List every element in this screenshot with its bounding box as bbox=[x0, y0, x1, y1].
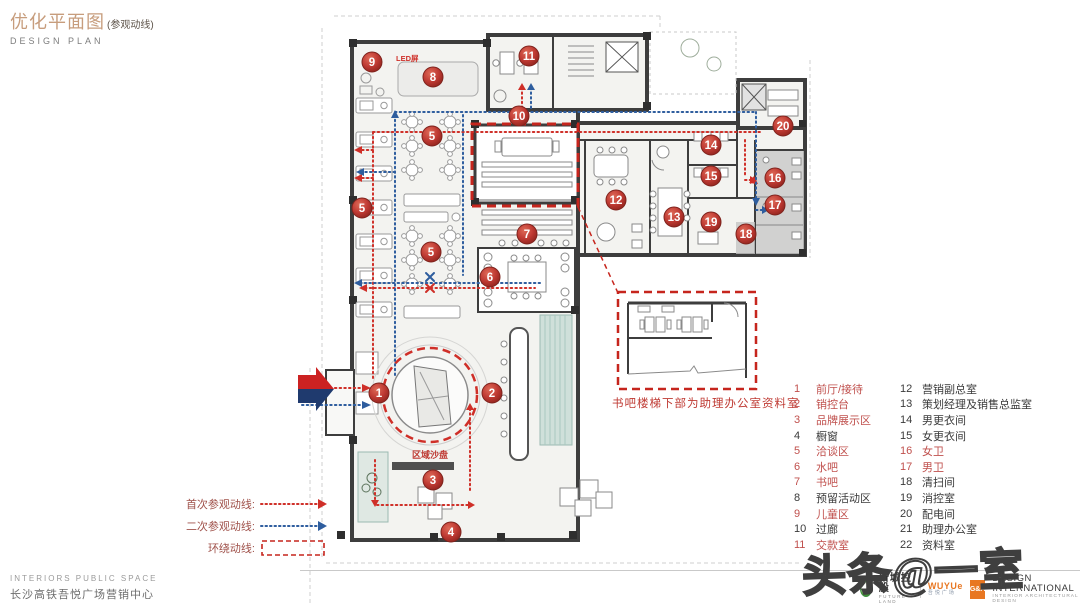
legend-item-number: 19 bbox=[900, 492, 922, 504]
plan-marker-4: 4 bbox=[441, 522, 461, 542]
svg-text:13: 13 bbox=[668, 212, 681, 224]
legend-item-label: 橱窗 bbox=[816, 428, 838, 444]
inset-caption: 书吧楼梯下部为助理办公室资料室 bbox=[612, 396, 800, 410]
legend-item-20: 20配电间 bbox=[900, 506, 1050, 522]
legend-item-2: 2销控台 bbox=[794, 397, 900, 413]
footer-project-cn: 长沙高铁吾悦广场营销中心 bbox=[10, 586, 157, 602]
svg-text:16: 16 bbox=[769, 173, 782, 185]
legend-item-label: 策划经理及销售总监室 bbox=[922, 396, 1032, 412]
route-legend: 首次参观动线: 二次参观动线: 环绕动线: bbox=[140, 493, 330, 559]
legend-item-label: 书吧 bbox=[816, 474, 838, 490]
svg-text:20: 20 bbox=[777, 121, 790, 133]
room-legend: 1前厅/接待2销控台3品牌展示区4橱窗5洽谈区6水吧7书吧8预留活动区9儿童区1… bbox=[794, 381, 1050, 553]
svg-text:9: 9 bbox=[369, 57, 375, 69]
route-second-label: 二次参观动线: bbox=[186, 518, 255, 534]
legend-item-number: 5 bbox=[794, 445, 816, 457]
legend-item-label: 销控台 bbox=[816, 396, 849, 412]
legend-item-number: 2 bbox=[794, 398, 816, 410]
svg-text:19: 19 bbox=[705, 217, 718, 229]
legend-item-number: 16 bbox=[900, 445, 922, 457]
plan-marker-20: 20 bbox=[773, 116, 793, 136]
plan-marker-19: 19 bbox=[701, 212, 721, 232]
plan-marker-7: 7 bbox=[517, 224, 537, 244]
legend-item-number: 18 bbox=[900, 476, 922, 488]
footer-project: INTERIORS PUBLIC SPACE 长沙高铁吾悦广场营销中心 bbox=[10, 574, 157, 602]
legend-item-number: 10 bbox=[794, 523, 816, 535]
legend-item-number: 20 bbox=[900, 508, 922, 520]
legend-item-number: 15 bbox=[900, 430, 922, 442]
plan-marker-3: 3 bbox=[423, 470, 443, 490]
design-plan-slide: 优化平面图 (参观动线) DESIGN PLAN bbox=[0, 0, 1080, 605]
svg-text:8: 8 bbox=[430, 72, 437, 84]
plan-marker-17: 17 bbox=[765, 195, 785, 215]
legend-item-9: 9儿童区 bbox=[794, 506, 900, 522]
legend-item-label: 过廊 bbox=[816, 521, 838, 537]
legend-item-15: 15女更衣间 bbox=[900, 428, 1050, 444]
svg-text:5: 5 bbox=[359, 203, 366, 215]
plan-marker-5: 5 bbox=[421, 242, 441, 262]
plan-marker-2: 2 bbox=[482, 383, 502, 403]
plan-marker-9: 9 bbox=[362, 52, 382, 72]
legend-item-number: 13 bbox=[900, 398, 922, 410]
legend-item-19: 19消控室 bbox=[900, 490, 1050, 506]
svg-text:17: 17 bbox=[769, 200, 782, 212]
legend-item-label: 女卫 bbox=[922, 443, 944, 459]
footer-project-en: INTERIORS PUBLIC SPACE bbox=[10, 574, 157, 583]
legend-item-label: 男更衣间 bbox=[922, 412, 966, 428]
legend-item-3: 3品牌展示区 bbox=[794, 412, 900, 428]
legend-item-10: 10过廊 bbox=[794, 521, 900, 537]
watermark: 头条@一室 bbox=[801, 531, 1080, 605]
legend-item-17: 17男卫 bbox=[900, 459, 1050, 475]
led-label: LED屏 bbox=[396, 54, 419, 63]
inset-detail: 书吧楼梯下部为助理办公室资料室 bbox=[612, 292, 800, 410]
legend-item-number: 9 bbox=[794, 508, 816, 520]
terrace bbox=[650, 32, 736, 94]
plan-marker-14: 14 bbox=[701, 135, 721, 155]
blue-dotted-arrow-swatch bbox=[258, 517, 330, 535]
sand-table-label: 区域沙盘 bbox=[412, 449, 448, 460]
route-first-label: 首次参观动线: bbox=[186, 496, 255, 512]
legend-item-number: 12 bbox=[900, 383, 922, 395]
legend-item-4: 4橱窗 bbox=[794, 428, 900, 444]
legend-item-number: 3 bbox=[794, 414, 816, 426]
legend-item-label: 配电间 bbox=[922, 506, 955, 522]
legend-item-13: 13策划经理及销售总监室 bbox=[900, 397, 1050, 413]
svg-text:1: 1 bbox=[376, 388, 383, 400]
legend-item-number: 1 bbox=[794, 383, 816, 395]
legend-item-14: 14男更衣间 bbox=[900, 412, 1050, 428]
svg-text:11: 11 bbox=[523, 51, 536, 63]
plan-marker-10: 10 bbox=[509, 106, 529, 126]
svg-text:3: 3 bbox=[430, 475, 436, 487]
svg-text:12: 12 bbox=[610, 195, 623, 207]
svg-text:18: 18 bbox=[740, 229, 753, 241]
legend-item-6: 6水吧 bbox=[794, 459, 900, 475]
room-legend-column-2: 12营销副总室13策划经理及销售总监室14男更衣间15女更衣间16女卫17男卫1… bbox=[900, 381, 1050, 553]
svg-text:15: 15 bbox=[705, 171, 718, 183]
legend-item-number: 17 bbox=[900, 461, 922, 473]
legend-item-label: 前厅/接待 bbox=[816, 381, 863, 397]
legend-item-label: 儿童区 bbox=[816, 506, 849, 522]
legend-item-number: 8 bbox=[794, 492, 816, 504]
legend-item-8: 8预留活动区 bbox=[794, 490, 900, 506]
plan-marker-13: 13 bbox=[664, 207, 684, 227]
legend-item-label: 女更衣间 bbox=[922, 428, 966, 444]
legend-item-label: 营销副总室 bbox=[922, 381, 977, 397]
legend-item-number: 6 bbox=[794, 461, 816, 473]
legend-item-number: 21 bbox=[900, 523, 922, 535]
plan-marker-12: 12 bbox=[606, 190, 626, 210]
legend-item-label: 预留活动区 bbox=[816, 490, 871, 506]
plan-marker-15: 15 bbox=[701, 166, 721, 186]
svg-text:5: 5 bbox=[428, 247, 435, 259]
legend-item-label: 洽谈区 bbox=[816, 443, 849, 459]
plan-marker-1: 1 bbox=[369, 383, 389, 403]
legend-item-label: 水吧 bbox=[816, 459, 838, 475]
legend-item-label: 品牌展示区 bbox=[816, 412, 871, 428]
legend-item-number: 4 bbox=[794, 430, 816, 442]
legend-item-label: 消控室 bbox=[922, 490, 955, 506]
route-legend-second: 二次参观动线: bbox=[140, 515, 330, 537]
svg-text:4: 4 bbox=[448, 527, 455, 539]
plan-marker-5: 5 bbox=[422, 126, 442, 146]
route-legend-loop: 环绕动线: bbox=[140, 537, 330, 559]
plan-marker-11: 11 bbox=[519, 46, 539, 66]
plan-marker-6: 6 bbox=[480, 267, 500, 287]
plan-marker-18: 18 bbox=[736, 224, 756, 244]
plan-marker-5: 5 bbox=[352, 198, 372, 218]
room-legend-column-1: 1前厅/接待2销控台3品牌展示区4橱窗5洽谈区6水吧7书吧8预留活动区9儿童区1… bbox=[794, 381, 900, 553]
legend-item-12: 12营销副总室 bbox=[900, 381, 1050, 397]
route-legend-first: 首次参观动线: bbox=[140, 493, 330, 515]
svg-text:5: 5 bbox=[429, 131, 436, 143]
legend-item-label: 清扫间 bbox=[922, 474, 955, 490]
legend-item-7: 7书吧 bbox=[794, 475, 900, 491]
svg-text:6: 6 bbox=[487, 272, 493, 284]
legend-item-18: 18清扫间 bbox=[900, 475, 1050, 491]
red-dashed-box-swatch bbox=[258, 539, 330, 557]
plan-marker-16: 16 bbox=[765, 168, 785, 188]
svg-text:10: 10 bbox=[513, 111, 526, 123]
legend-item-number: 14 bbox=[900, 414, 922, 426]
legend-item-16: 16女卫 bbox=[900, 443, 1050, 459]
legend-item-label: 男卫 bbox=[922, 459, 944, 475]
route-loop-label: 环绕动线: bbox=[208, 540, 255, 556]
red-dotted-arrow-swatch bbox=[258, 495, 330, 513]
svg-text:7: 7 bbox=[524, 229, 530, 241]
legend-item-5: 5洽谈区 bbox=[794, 443, 900, 459]
svg-text:14: 14 bbox=[705, 140, 718, 152]
plan-marker-8: 8 bbox=[423, 67, 443, 87]
svg-text:2: 2 bbox=[489, 388, 495, 400]
legend-item-number: 7 bbox=[794, 476, 816, 488]
legend-item-1: 1前厅/接待 bbox=[794, 381, 900, 397]
